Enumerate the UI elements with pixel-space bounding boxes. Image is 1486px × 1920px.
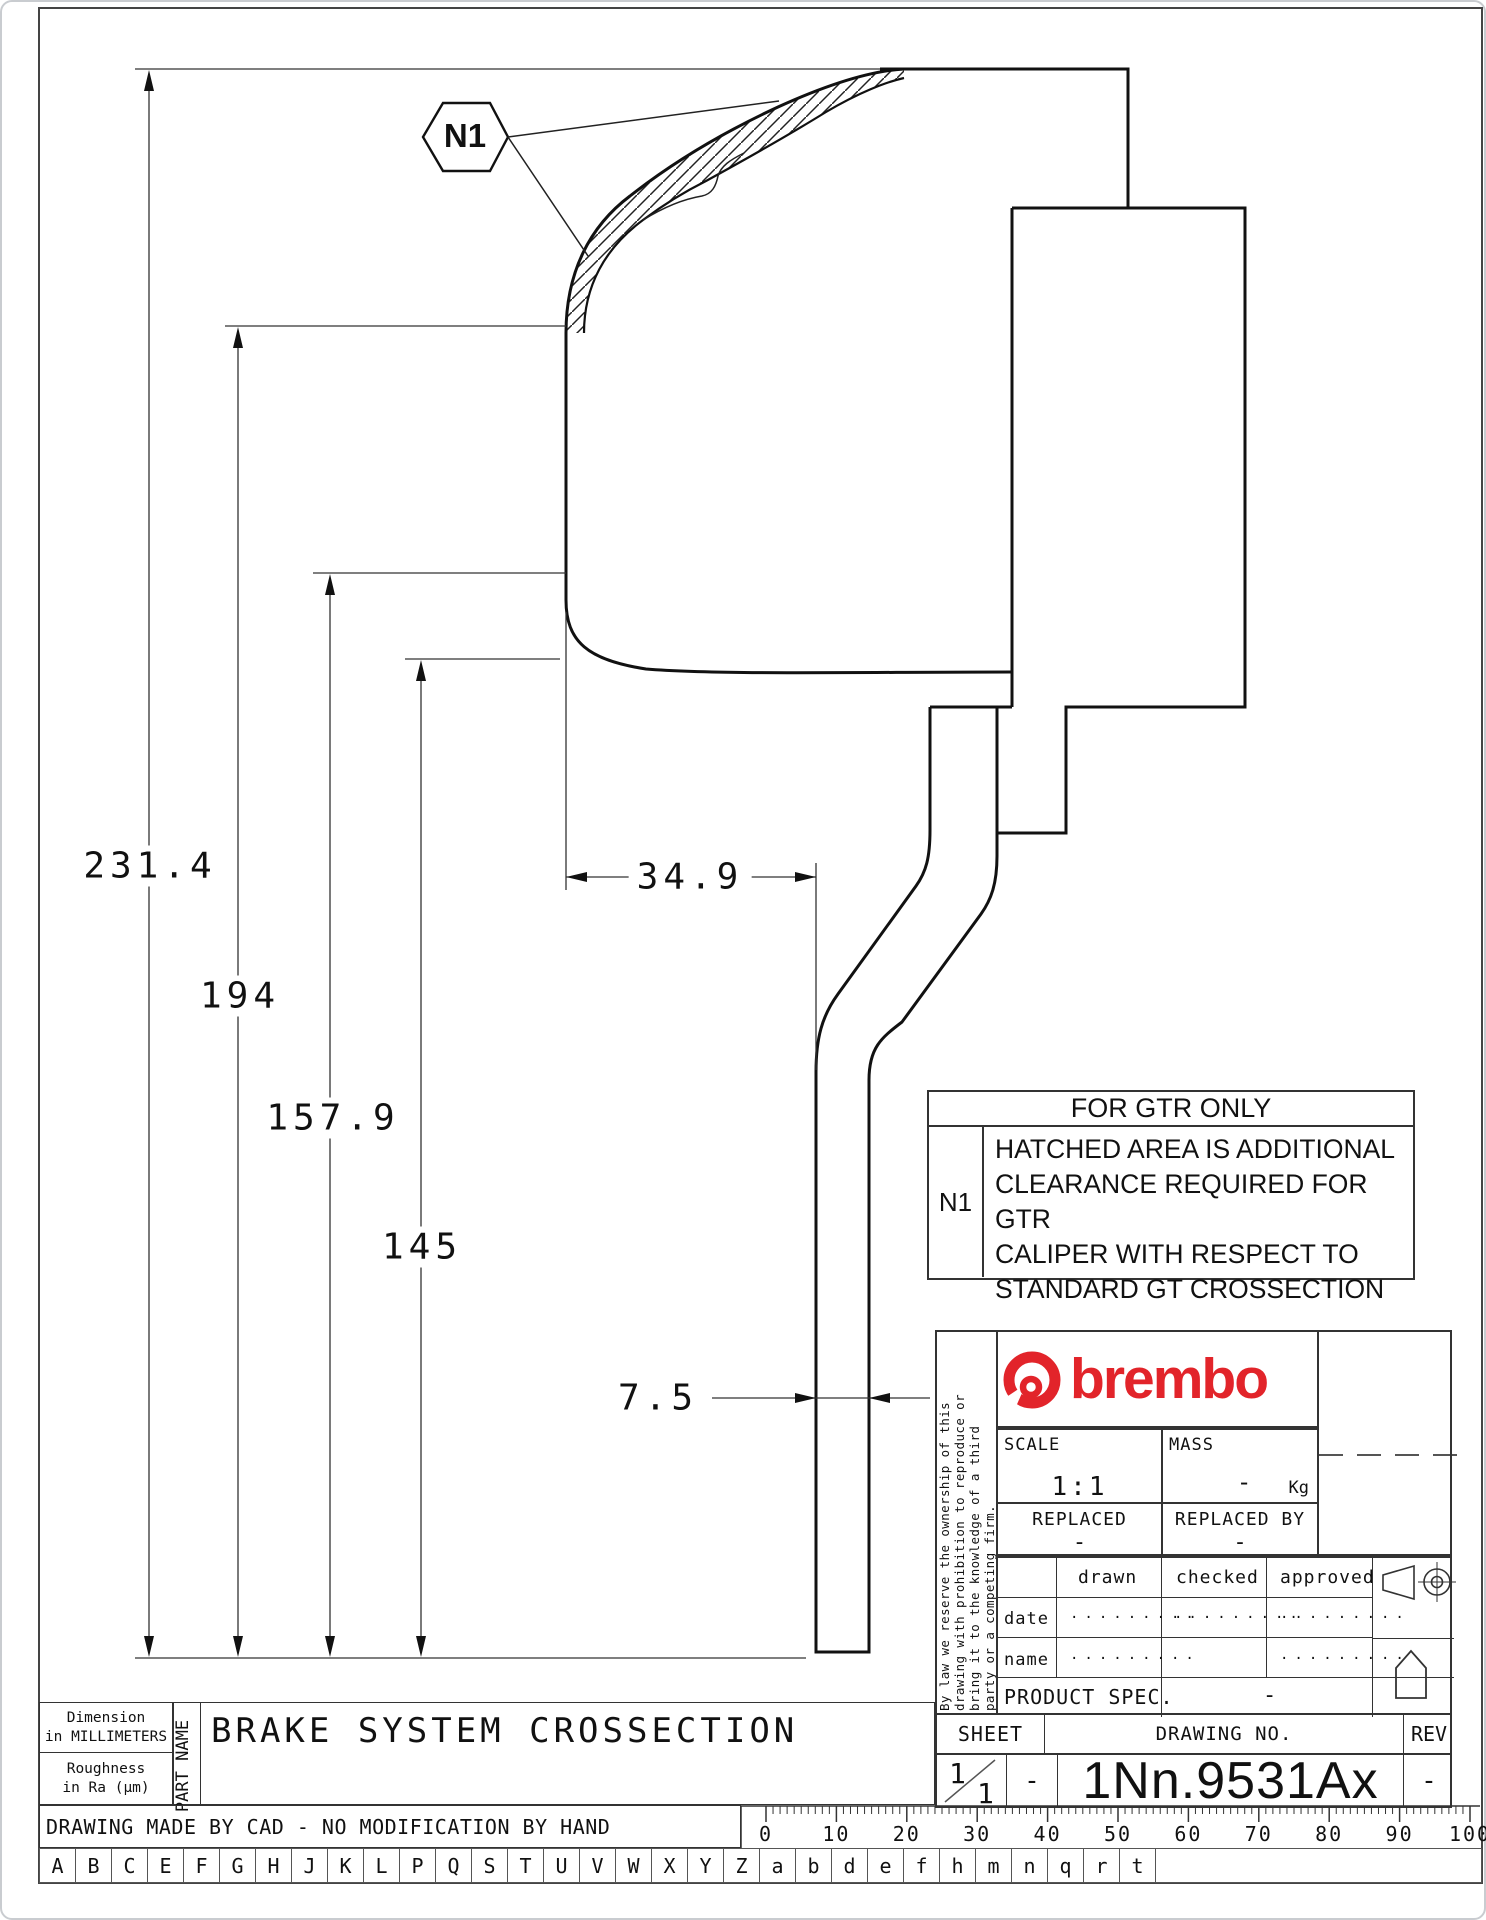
alphabet-cell: C xyxy=(112,1849,148,1882)
dim-height-194: 194 xyxy=(192,976,288,1017)
dimension-units-line2: in MILLIMETERS xyxy=(45,1729,167,1745)
col-drawn: drawn xyxy=(1078,1567,1137,1588)
replaced-by-box: REPLACED BY - xyxy=(1163,1504,1319,1556)
replaced-label: REPLACED xyxy=(1032,1509,1127,1530)
dimension-units-box: Dimension in MILLIMETERS xyxy=(39,1702,173,1753)
drawing-no-row: 1 1 - 1Nn.9531Ax - xyxy=(935,1755,1452,1808)
ruler-number: 80 xyxy=(1315,1822,1343,1846)
product-spec-label: PRODUCT SPEC. xyxy=(1004,1685,1174,1709)
grid-line xyxy=(998,1597,1372,1598)
part-title: BRAKE SYSTEM CROSSECTION xyxy=(211,1711,798,1751)
alphabet-cell: m xyxy=(976,1849,1012,1882)
alphabet-cell: d xyxy=(832,1849,868,1882)
ruler-labels: 0102030405060708090100 xyxy=(0,1822,1486,1846)
n1-callout-label: N1 xyxy=(444,117,486,155)
alphabet-cell: S xyxy=(472,1849,508,1882)
alphabet-cell: b xyxy=(796,1849,832,1882)
grid-line xyxy=(1056,1558,1057,1677)
dim-thickness-7-5: 7.5 xyxy=(610,1378,706,1419)
alphabet-cell: F xyxy=(184,1849,220,1882)
approval-table: drawn checked approved date ......... ..… xyxy=(996,1556,1452,1715)
alphabet-cell: q xyxy=(1048,1849,1084,1882)
alphabet-row: ABCEFGHJKLPQSTUVWXYZabdefhmnqrt xyxy=(39,1848,1482,1883)
alphabet-cell: a xyxy=(760,1849,796,1882)
dim-height-157-9: 157.9 xyxy=(258,1098,407,1139)
alphabet-cell: E xyxy=(148,1849,184,1882)
ruler-number: 50 xyxy=(1104,1822,1132,1846)
dimension-units-line1: Dimension xyxy=(67,1710,146,1726)
date-approved-dots: ......... xyxy=(1280,1606,1410,1622)
sheet-dash-cell: - xyxy=(1007,1755,1058,1806)
alphabet-cell: n xyxy=(1012,1849,1048,1882)
legal-notice-strip: By law we reserve the ownership of this … xyxy=(935,1330,998,1715)
caliper-outline xyxy=(880,69,1245,833)
drawing-no-label: DRAWING NO. xyxy=(1045,1715,1404,1753)
legal-notice-text: By law we reserve the ownership of this … xyxy=(937,1332,999,1717)
alphabet-cell: e xyxy=(868,1849,904,1882)
alphabet-cell: W xyxy=(616,1849,652,1882)
alphabet-cell: r xyxy=(1084,1849,1120,1882)
ruler-number: 30 xyxy=(963,1822,991,1846)
alphabet-cell: V xyxy=(580,1849,616,1882)
row-date-label: date xyxy=(1004,1609,1049,1629)
roughness-line2: in Ra (μm) xyxy=(62,1780,149,1796)
gtr-outer-profile xyxy=(566,69,904,333)
scale-value: 1:1 xyxy=(1052,1472,1108,1502)
gtr-note-text: HATCHED AREA IS ADDITIONAL CLEARANCE REQ… xyxy=(995,1132,1415,1307)
ruler-number: 20 xyxy=(893,1822,921,1846)
part-name-strip: PART NAME xyxy=(173,1702,201,1805)
part-title-box: BRAKE SYSTEM CROSSECTION xyxy=(201,1702,935,1805)
scale-box: SCALE 1:1 xyxy=(996,1428,1163,1504)
alphabet-cell: T xyxy=(508,1849,544,1882)
col-checked: checked xyxy=(1176,1567,1259,1588)
part-name-label: PART NAME xyxy=(173,1716,199,1816)
sheet-number-bottom: 1 xyxy=(977,1777,994,1810)
sheet-header-row: SHEET DRAWING NO. REV xyxy=(935,1715,1452,1755)
ruler-number: 60 xyxy=(1174,1822,1202,1846)
alphabet-cell: f xyxy=(904,1849,940,1882)
rev-value: - xyxy=(1404,1755,1454,1806)
ruler-number: 40 xyxy=(1034,1822,1062,1846)
gtr-ref-cell: N1 xyxy=(929,1127,984,1277)
name-drawn-dots: ......... xyxy=(1070,1647,1200,1663)
alphabet-cell: Z xyxy=(724,1849,760,1882)
extension-lines xyxy=(135,69,880,1658)
alphabet-cell: t xyxy=(1120,1849,1156,1882)
dim-height-145: 145 xyxy=(374,1227,470,1268)
alphabet-cell: X xyxy=(652,1849,688,1882)
roughness-line1: Roughness xyxy=(67,1761,146,1777)
grid-line xyxy=(998,1637,1372,1638)
replaced-by-label: REPLACED BY xyxy=(1175,1509,1305,1530)
replaced-box: REPLACED - xyxy=(996,1504,1163,1556)
n1-leader-lines xyxy=(508,101,779,256)
ruler-number: 100 xyxy=(1449,1822,1486,1846)
replaced-value: - xyxy=(1073,1530,1086,1555)
scale-label: SCALE xyxy=(1004,1435,1060,1455)
dim-width-34-9: 34.9 xyxy=(629,857,752,898)
gtr-note-table: FOR GTR ONLY N1 HATCHED AREA IS ADDITION… xyxy=(927,1090,1415,1280)
dimension-arrowheads xyxy=(144,70,890,1657)
alphabet-cell: B xyxy=(76,1849,112,1882)
dim-overall-height: 231.4 xyxy=(75,846,224,887)
drawing-number: 1Nn.9531Ax xyxy=(1058,1755,1404,1806)
mass-value: - xyxy=(1237,1468,1251,1496)
col-approved: approved xyxy=(1280,1567,1375,1588)
sheet-fraction-cell: 1 1 xyxy=(937,1755,1007,1806)
alphabet-cell: P xyxy=(400,1849,436,1882)
grid-line xyxy=(1372,1638,1454,1639)
disc-profile xyxy=(566,333,1012,673)
ruler-number: 70 xyxy=(1245,1822,1273,1846)
alphabet-cell: K xyxy=(328,1849,364,1882)
alphabet-cell: G xyxy=(220,1849,256,1882)
alphabet-cell: L xyxy=(364,1849,400,1882)
product-spec-value: - xyxy=(1263,1683,1276,1708)
sheet-label: SHEET xyxy=(937,1715,1045,1753)
mass-label: MASS xyxy=(1169,1435,1214,1455)
grid-line xyxy=(998,1677,1454,1678)
alphabet-cell: H xyxy=(256,1849,292,1882)
roughness-units-box: Roughness in Ra (μm) xyxy=(39,1753,173,1805)
gtr-table-title: FOR GTR ONLY xyxy=(929,1092,1413,1127)
replaced-by-value: - xyxy=(1233,1530,1246,1555)
alphabet-cell: Y xyxy=(688,1849,724,1882)
alphabet-cell: U xyxy=(544,1849,580,1882)
mass-unit: Kg xyxy=(1289,1478,1309,1498)
alphabet-cell: h xyxy=(940,1849,976,1882)
ruler-number: 10 xyxy=(822,1822,850,1846)
brand-box: brembo xyxy=(996,1330,1319,1428)
alphabet-cell: Q xyxy=(436,1849,472,1882)
ruler-number: 90 xyxy=(1386,1822,1414,1846)
title-block-spare-area xyxy=(1319,1330,1452,1556)
hatched-clearance-area xyxy=(566,69,904,333)
mass-box: MASS - Kg xyxy=(1163,1428,1319,1504)
row-name-label: name xyxy=(1004,1650,1049,1670)
brand-name: brembo xyxy=(1070,1346,1267,1412)
alphabet-cell: A xyxy=(40,1849,76,1882)
sheet-number-top: 1 xyxy=(949,1757,966,1790)
dimension-lines xyxy=(149,74,930,1652)
alphabet-cell: J xyxy=(292,1849,328,1882)
name-approved-dots: ......... xyxy=(1280,1647,1410,1663)
cad-drawing-page: 231.4 194 157.9 145 34.9 7.5 N1 FOR GTR … xyxy=(0,0,1486,1920)
rev-label: REV xyxy=(1404,1715,1454,1753)
ruler-number: 0 xyxy=(759,1822,773,1846)
